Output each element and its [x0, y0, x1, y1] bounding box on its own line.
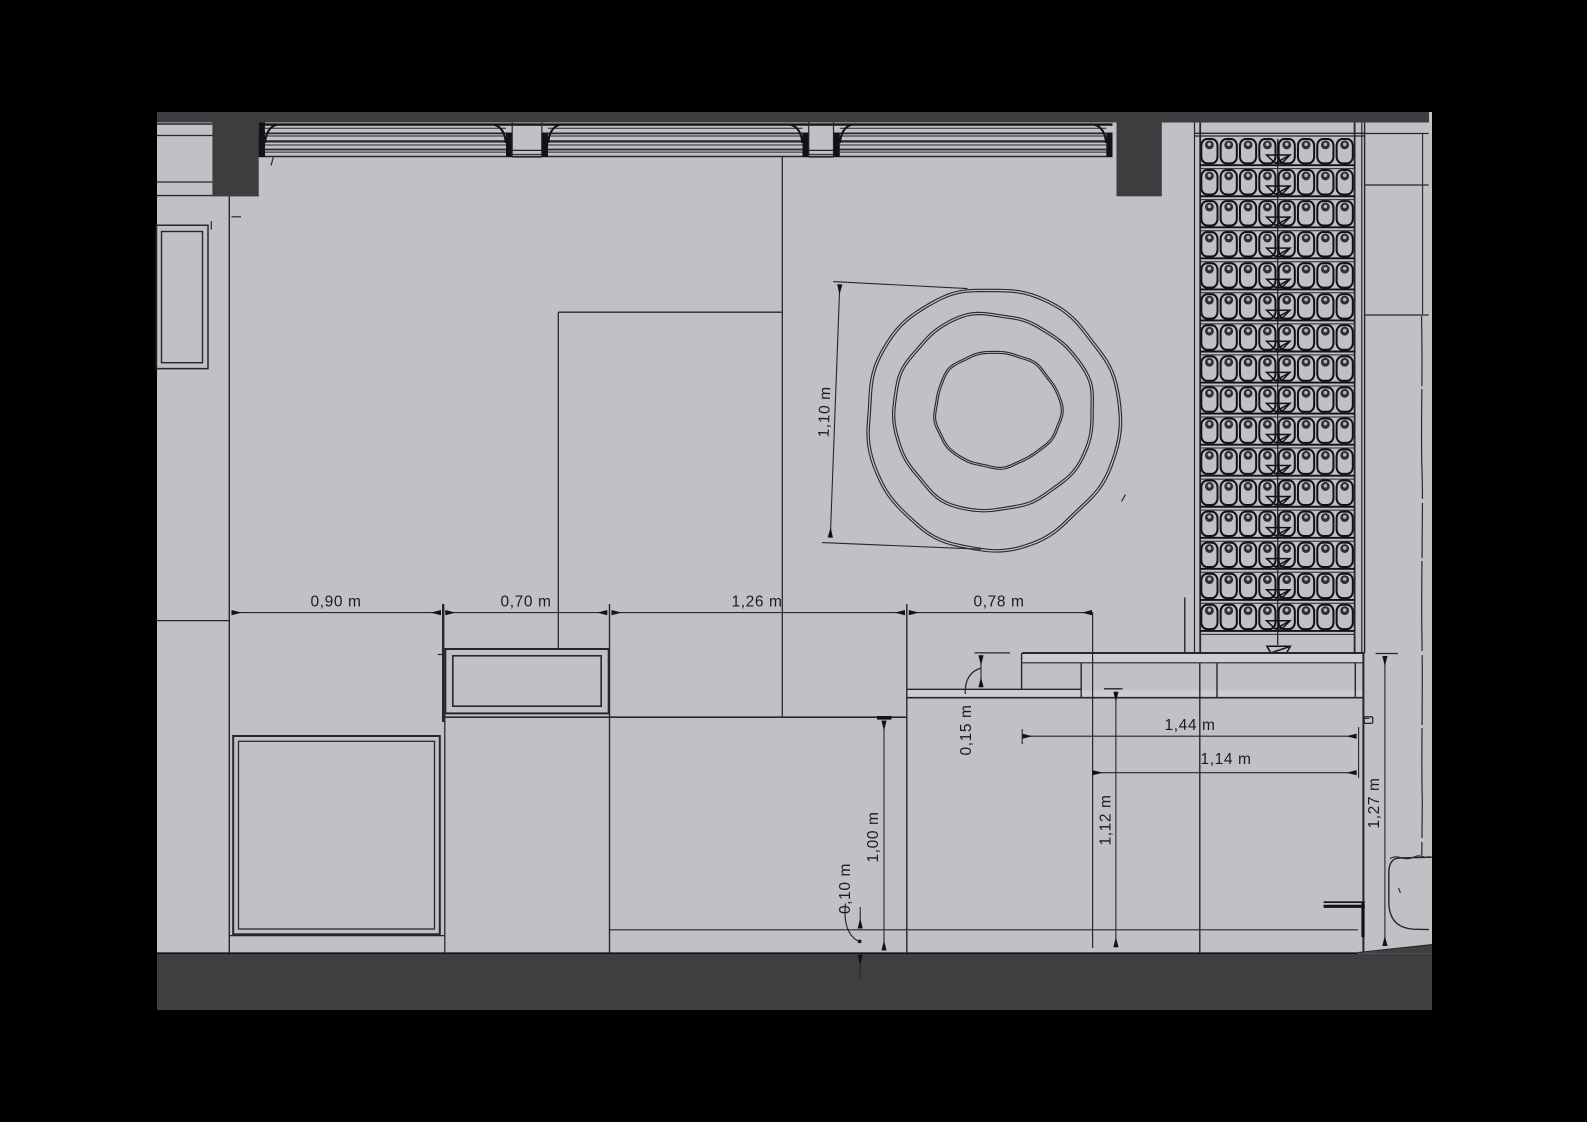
svg-text:0,70 m: 0,70 m [501, 594, 552, 611]
svg-text:0,78 m: 0,78 m [974, 594, 1025, 611]
svg-text:1,10 m: 1,10 m [816, 386, 835, 438]
svg-text:0,90 m: 0,90 m [311, 594, 362, 611]
svg-text:1,44 m: 1,44 m [1165, 717, 1216, 734]
svg-text:1,27 m: 1,27 m [1366, 778, 1383, 829]
svg-text:0,10 m: 0,10 m [837, 863, 854, 914]
svg-text:1,12 m: 1,12 m [1098, 795, 1115, 846]
svg-text:1,14 m: 1,14 m [1201, 751, 1252, 768]
svg-text:1,26 m: 1,26 m [732, 594, 783, 611]
svg-text:1,00 m: 1,00 m [865, 812, 882, 863]
svg-text:0,15 m: 0,15 m [958, 705, 975, 756]
